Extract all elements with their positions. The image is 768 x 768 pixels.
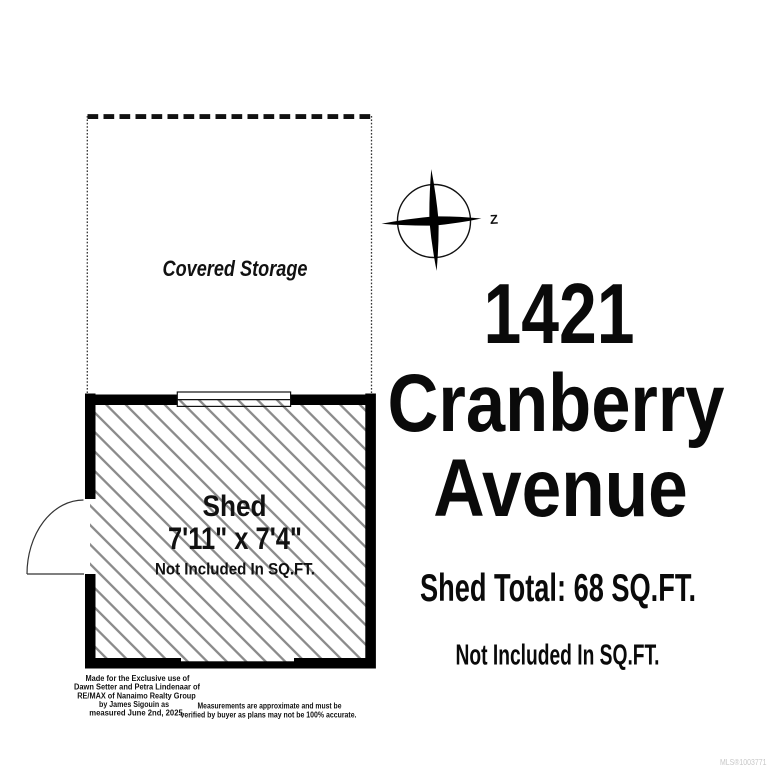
svg-text:Avenue: Avenue: [433, 443, 688, 534]
svg-text:MLS®1003771: MLS®1003771: [720, 757, 767, 767]
svg-text:verified by buyer as plans may: verified by buyer as plans may not be 10…: [181, 710, 357, 720]
svg-text:Covered Storage: Covered Storage: [163, 256, 308, 281]
svg-text:Cranberry: Cranberry: [388, 358, 725, 449]
svg-text:Not Included In SQ.FT.: Not Included In SQ.FT.: [155, 560, 315, 579]
svg-text:Z: Z: [490, 212, 499, 227]
svg-text:1421: 1421: [484, 267, 635, 362]
svg-text:Shed Total: 68 SQ.FT.: Shed Total: 68 SQ.FT.: [420, 567, 696, 610]
svg-text:Shed: Shed: [203, 490, 267, 523]
svg-text:measured June 2nd, 2025: measured June 2nd, 2025: [89, 708, 183, 718]
svg-text:Not Included In SQ.FT.: Not Included In SQ.FT.: [456, 640, 660, 672]
svg-text:7'11" x 7'4": 7'11" x 7'4": [168, 520, 302, 556]
